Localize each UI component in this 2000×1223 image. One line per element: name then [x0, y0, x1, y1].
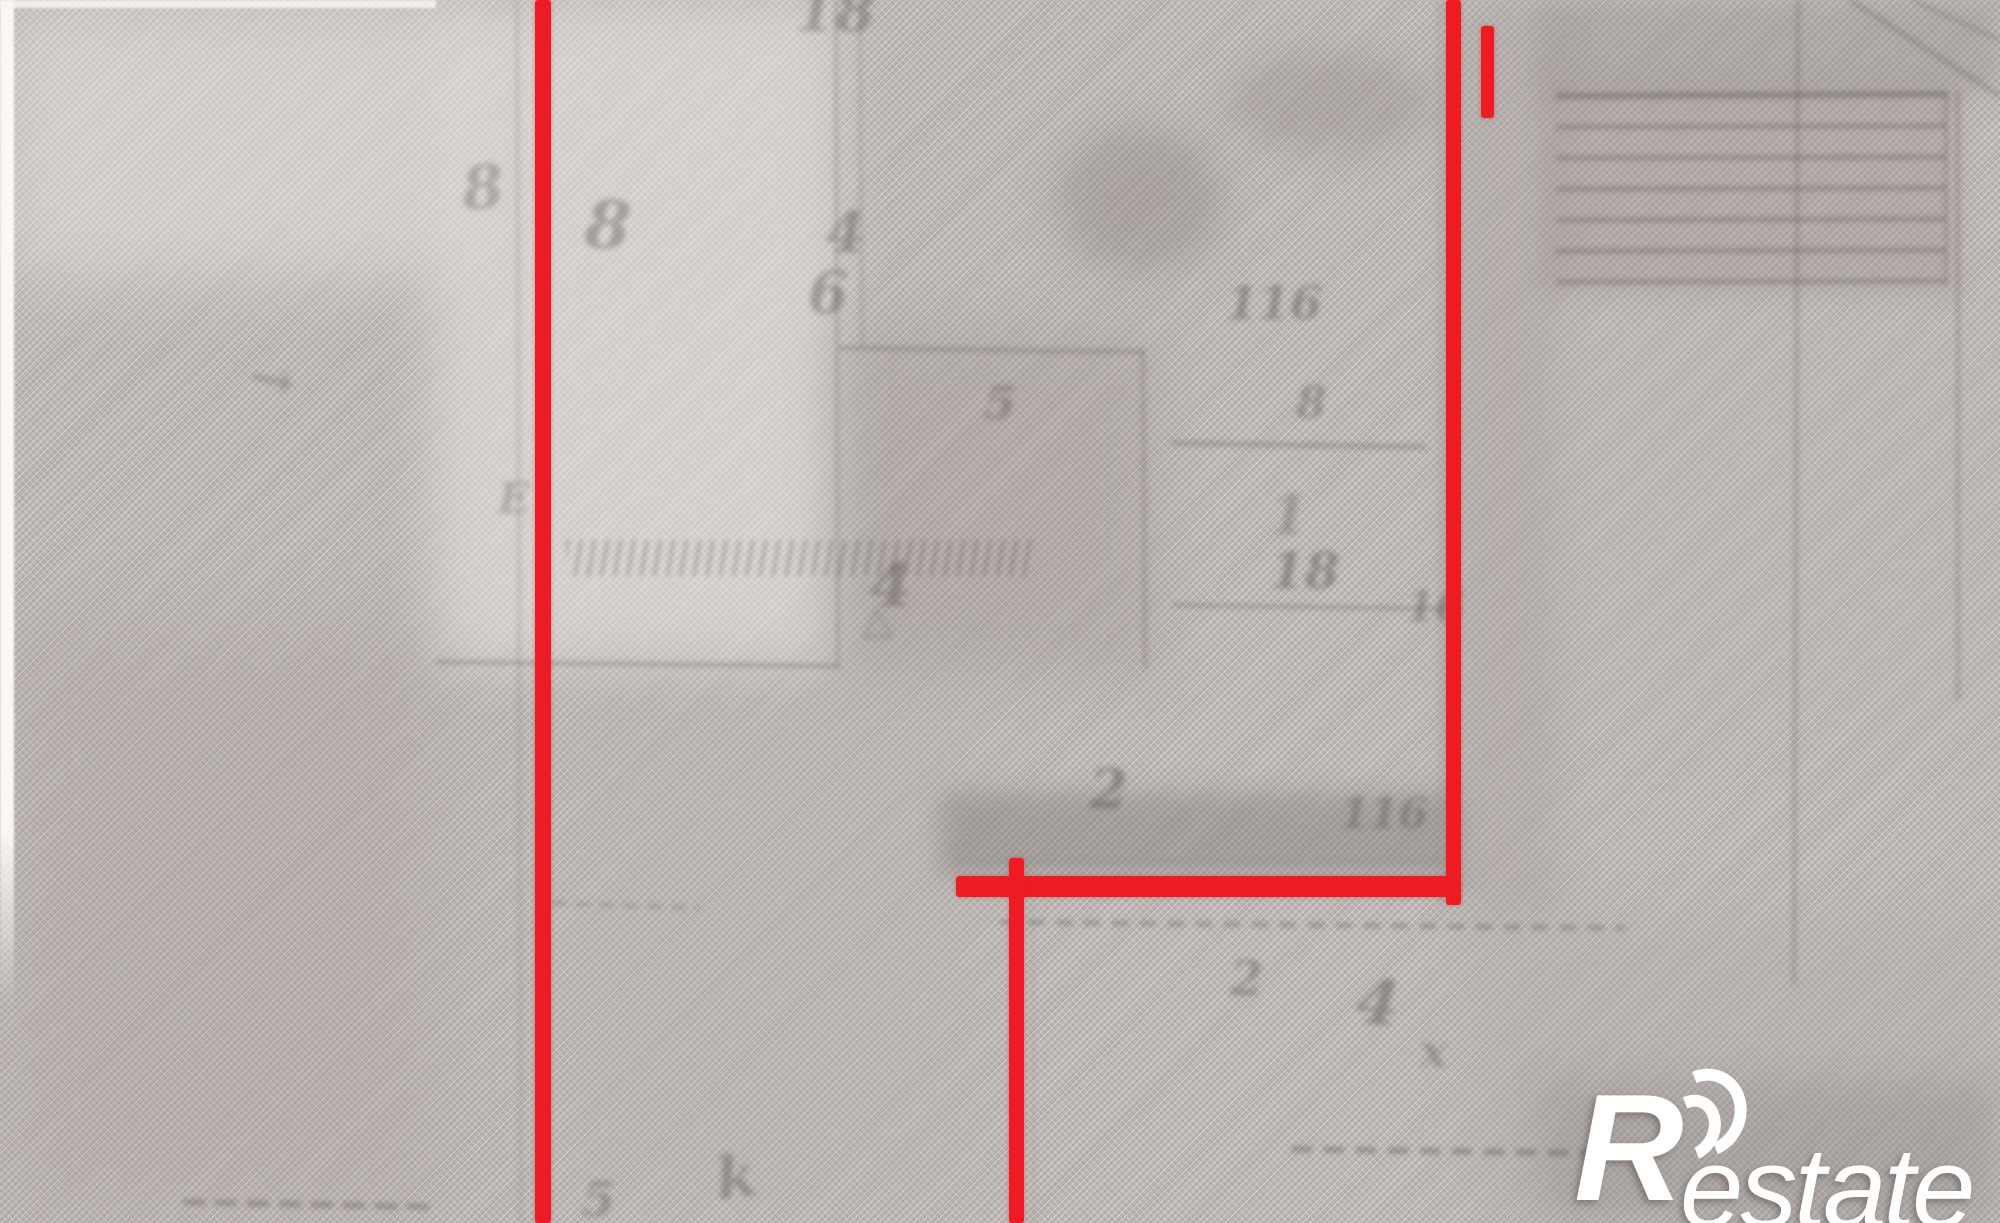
red-boundary-left-vertical — [535, 0, 551, 1223]
red-boundary-middle-vertical — [1009, 858, 1024, 1223]
watermark-logo: R estate — [1574, 1086, 2000, 1223]
map-photo: 188846E54△116811816211624xk5→ R estate — [0, 0, 2000, 1223]
red-boundary-horizontal — [956, 876, 1460, 897]
red-boundary-top-right-short — [1481, 26, 1494, 118]
paper-edge-top — [0, 0, 436, 8]
red-boundary-right-vertical — [1446, 0, 1461, 905]
paper-edge-left — [0, 0, 14, 1010]
watermark-brand-suffix: estate — [1680, 1132, 1973, 1223]
red-annotation-layer — [0, 0, 2000, 1223]
